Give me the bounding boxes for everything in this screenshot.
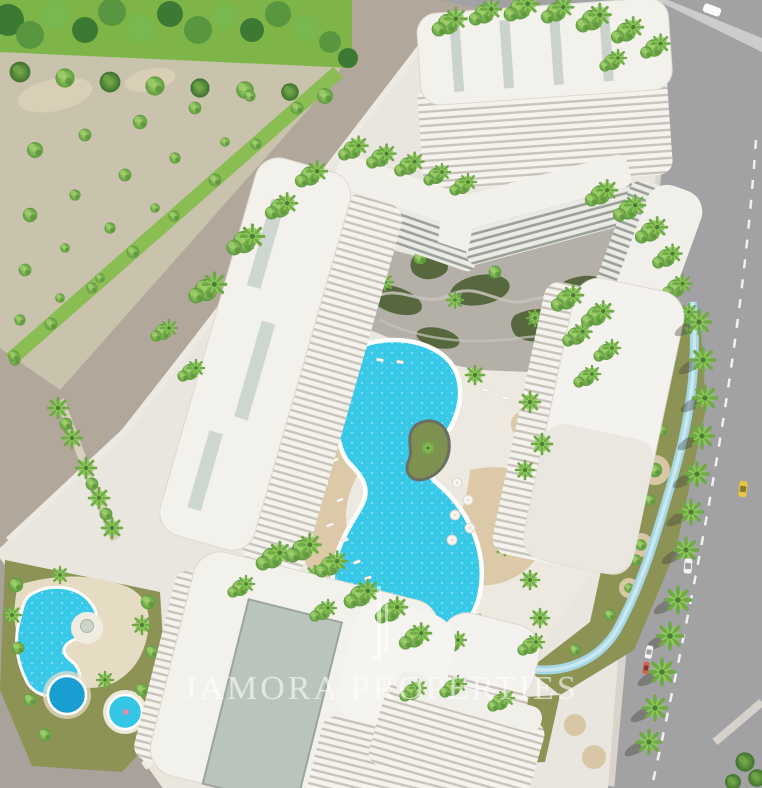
scene-canvas — [0, 0, 762, 788]
swimmer — [123, 709, 129, 715]
aerial-render-image: JAMORA PROPERTIES — [0, 0, 762, 788]
round-pool — [48, 676, 86, 714]
car-white — [683, 558, 692, 574]
dome-roof — [81, 620, 94, 633]
top-tower — [412, 0, 680, 191]
